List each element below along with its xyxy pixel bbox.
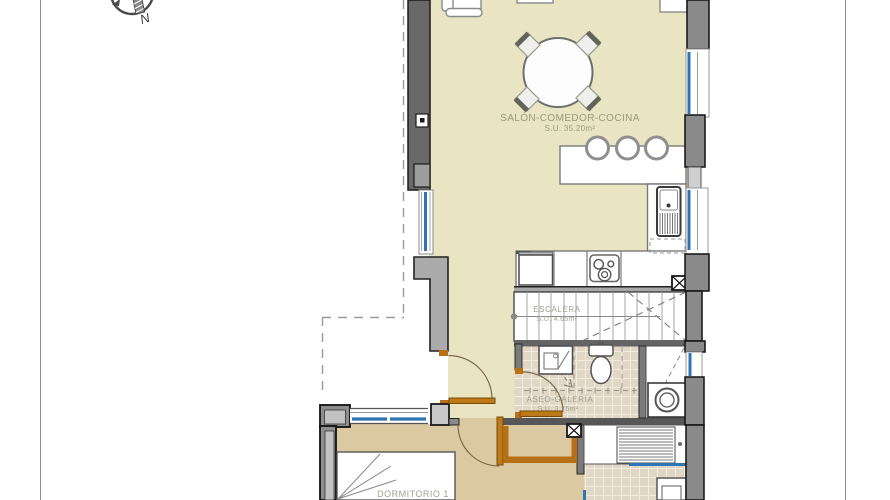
svg-text:DORMITORIO 1: DORMITORIO 1 (377, 489, 449, 499)
svg-text:S.U. 35.20m²: S.U. 35.20m² (545, 124, 596, 133)
svg-text:SALÓN-COMEDOR-COCINA: SALÓN-COMEDOR-COCINA (500, 111, 640, 124)
svg-text:S.U. 4.65m²: S.U. 4.65m² (537, 316, 578, 323)
svg-text:ESCALERA: ESCALERA (533, 305, 581, 314)
